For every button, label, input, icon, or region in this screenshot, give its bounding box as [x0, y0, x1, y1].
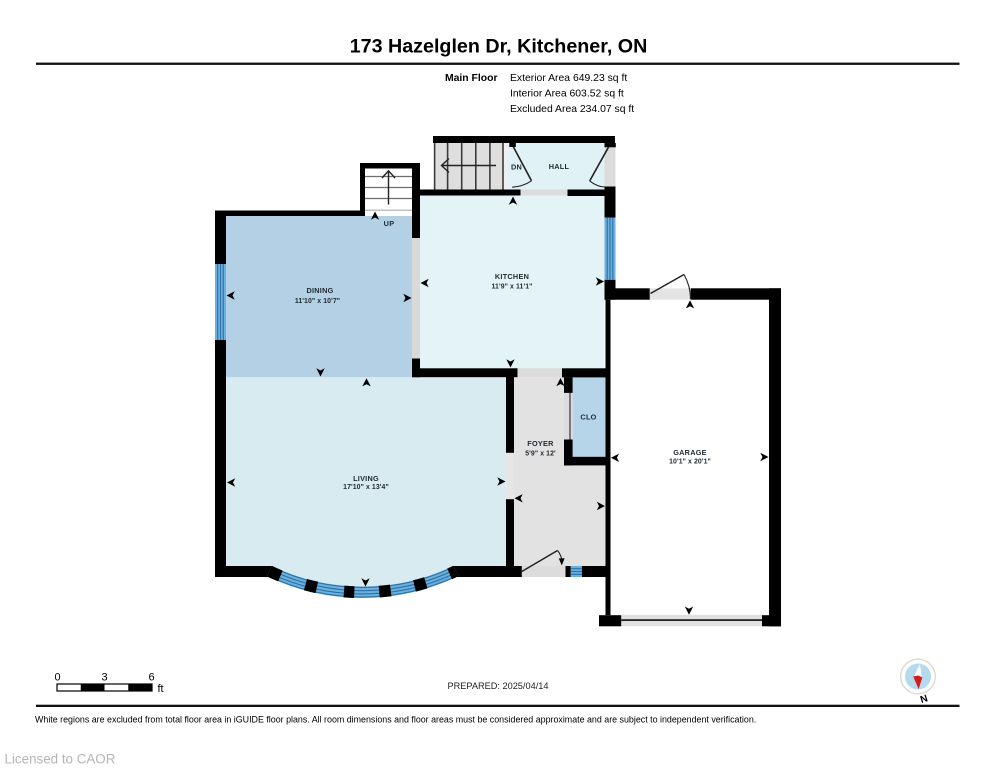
- svg-text:CLO: CLO: [580, 412, 596, 421]
- svg-text:173 Hazelglen Dr, Kitchener, O: 173 Hazelglen Dr, Kitchener, ON: [350, 36, 648, 58]
- svg-text:Interior Area 603.52 sq ft: Interior Area 603.52 sq ft: [510, 89, 624, 100]
- svg-text:KITCHEN: KITCHEN: [495, 272, 529, 281]
- svg-text:ft: ft: [158, 683, 164, 695]
- svg-text:White regions are excluded fro: White regions are excluded from total fl…: [35, 715, 756, 725]
- svg-text:17'10" x 13'4": 17'10" x 13'4": [343, 484, 389, 491]
- svg-text:Exterior Area 649.23 sq ft: Exterior Area 649.23 sq ft: [510, 73, 627, 84]
- svg-text:Licensed to CAOR: Licensed to CAOR: [5, 752, 116, 767]
- svg-text:Excluded Area 234.07 sq ft: Excluded Area 234.07 sq ft: [510, 104, 634, 115]
- svg-text:FOYER: FOYER: [527, 439, 554, 448]
- svg-text:PREPARED: 2025/04/14: PREPARED: 2025/04/14: [448, 681, 549, 691]
- svg-text:UP: UP: [384, 219, 395, 228]
- svg-text:10'1" x 20'1": 10'1" x 20'1": [669, 458, 711, 465]
- svg-text:0: 0: [54, 672, 60, 684]
- svg-text:3: 3: [101, 672, 107, 684]
- svg-text:HALL: HALL: [549, 162, 570, 171]
- svg-text:Main Floor: Main Floor: [445, 73, 498, 84]
- svg-text:5'9" x 12': 5'9" x 12': [525, 451, 556, 458]
- svg-text:11'10" x 10'7": 11'10" x 10'7": [295, 298, 340, 305]
- svg-text:11'9" x 11'1": 11'9" x 11'1": [491, 283, 532, 290]
- svg-text:GARAGE: GARAGE: [673, 448, 707, 457]
- svg-text:DN: DN: [511, 163, 522, 172]
- svg-text:DINING: DINING: [306, 286, 333, 295]
- svg-text:LIVING: LIVING: [353, 474, 379, 483]
- svg-text:6: 6: [148, 672, 154, 684]
